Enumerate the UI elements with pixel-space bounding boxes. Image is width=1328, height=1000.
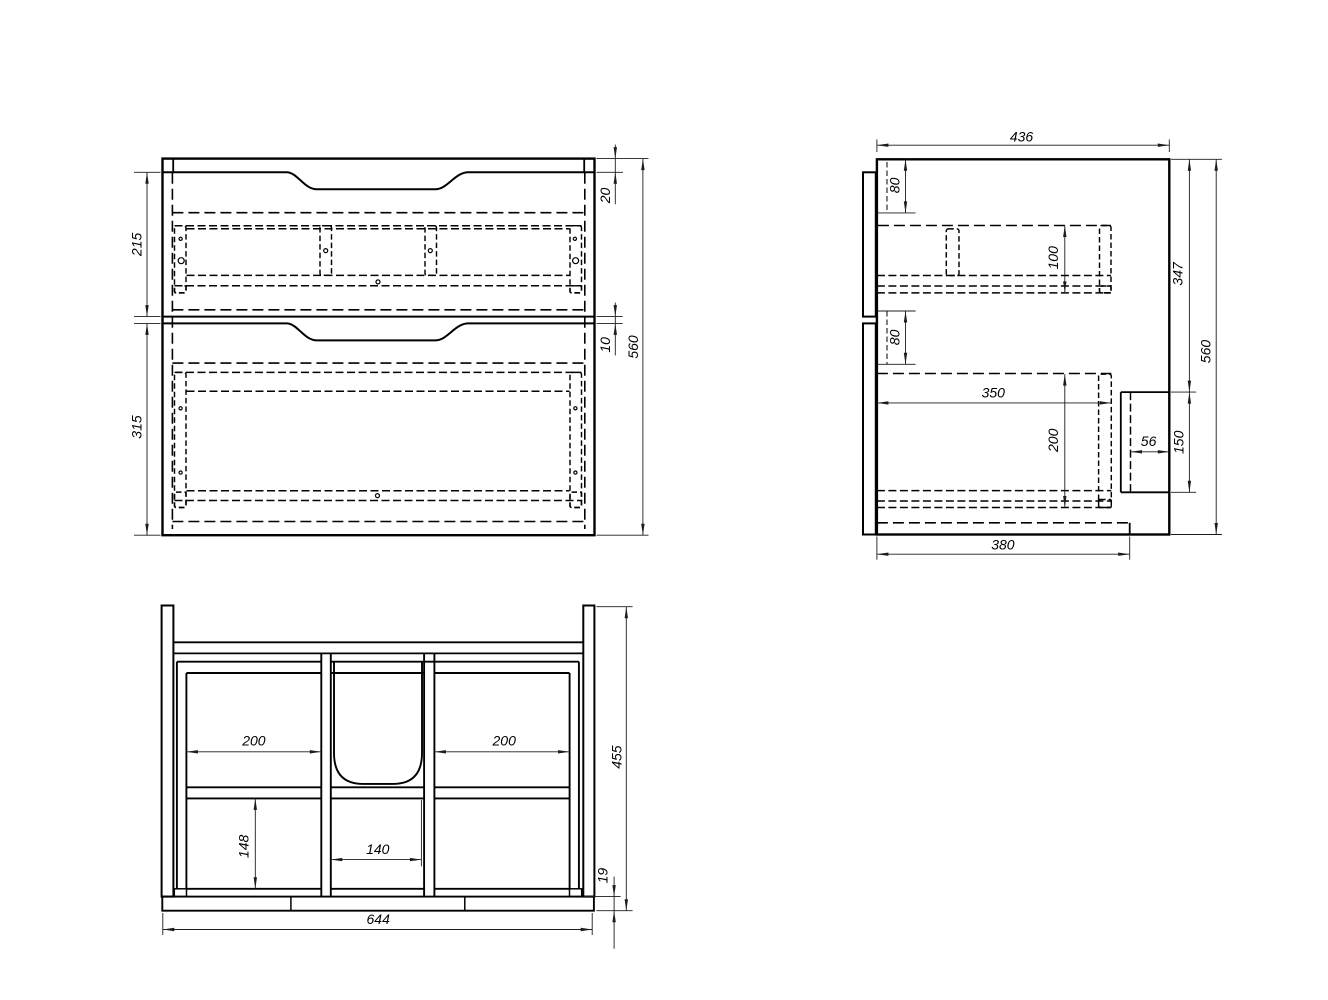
svg-text:347: 347 <box>1170 261 1186 286</box>
svg-text:19: 19 <box>594 868 610 884</box>
svg-text:150: 150 <box>1171 430 1187 454</box>
svg-text:200: 200 <box>241 733 266 749</box>
svg-text:56: 56 <box>1141 433 1157 449</box>
svg-text:644: 644 <box>367 911 391 927</box>
svg-text:560: 560 <box>1197 340 1213 364</box>
svg-text:436: 436 <box>1010 129 1034 145</box>
svg-text:200: 200 <box>492 733 517 749</box>
svg-text:380: 380 <box>991 537 1015 553</box>
svg-text:200: 200 <box>1045 428 1061 453</box>
svg-text:80: 80 <box>887 177 903 193</box>
svg-text:80: 80 <box>887 329 903 345</box>
svg-text:148: 148 <box>236 835 252 859</box>
svg-text:315: 315 <box>129 415 145 439</box>
svg-text:20: 20 <box>597 188 613 205</box>
svg-text:215: 215 <box>129 233 145 258</box>
svg-text:560: 560 <box>625 335 641 359</box>
svg-text:350: 350 <box>982 384 1006 400</box>
svg-text:10: 10 <box>597 337 613 353</box>
svg-text:140: 140 <box>366 841 390 857</box>
svg-text:100: 100 <box>1045 246 1061 270</box>
svg-text:455: 455 <box>609 745 625 769</box>
